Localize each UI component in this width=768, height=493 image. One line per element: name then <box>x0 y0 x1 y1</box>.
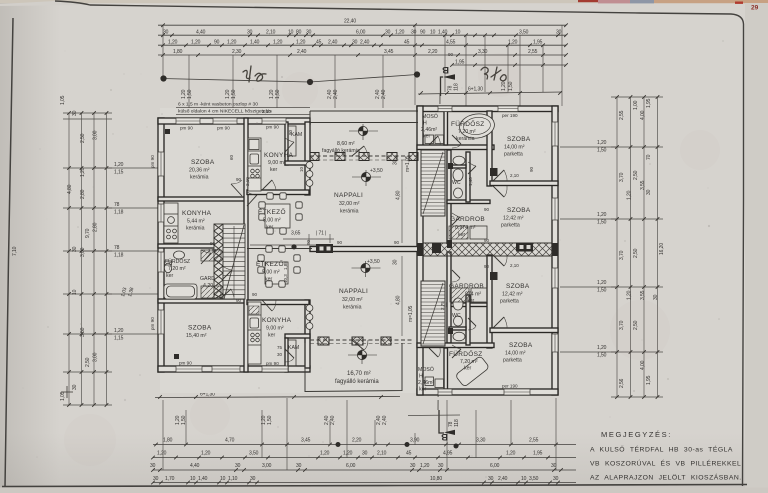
svg-text:14,00 m²: 14,00 m² <box>505 351 526 357</box>
svg-text:4,40: 4,40 <box>190 463 200 469</box>
svg-text:1,20: 1,20 <box>597 212 607 218</box>
svg-text:3,00: 3,00 <box>93 130 99 140</box>
svg-text:3,00: 3,00 <box>80 247 86 257</box>
svg-text:20,36 m²: 20,36 m² <box>189 168 210 174</box>
svg-text:m=1,05: m=1,05 <box>405 155 411 172</box>
svg-text:ker: ker <box>464 366 471 372</box>
svg-text:2,20: 2,20 <box>352 438 362 444</box>
svg-text:32,00 m²: 32,00 m² <box>342 297 363 303</box>
svg-text:1,20: 1,20 <box>597 140 607 146</box>
svg-text:9,00 m²: 9,00 m² <box>266 326 284 332</box>
svg-text:H: H <box>423 121 427 127</box>
svg-text:1,18: 1,18 <box>114 253 124 259</box>
svg-text:parketta: parketta <box>503 358 522 364</box>
svg-text:15,40 m²: 15,40 m² <box>186 333 207 339</box>
svg-text:2,55: 2,55 <box>619 110 625 120</box>
svg-text:ker: ker <box>458 232 465 238</box>
svg-text:1,20: 1,20 <box>273 39 283 45</box>
svg-text:2,20: 2,20 <box>428 49 438 55</box>
svg-text:2,55: 2,55 <box>528 49 538 55</box>
svg-text:30: 30 <box>438 463 444 469</box>
svg-text:10: 10 <box>430 29 436 35</box>
svg-text:10: 10 <box>299 166 304 172</box>
svg-text:80: 80 <box>296 29 302 35</box>
svg-text:10,80: 10,80 <box>430 476 442 482</box>
svg-text:30: 30 <box>72 384 78 390</box>
svg-text:60: 60 <box>229 154 234 160</box>
svg-text:3,65: 3,65 <box>291 231 301 237</box>
svg-text:1,20: 1,20 <box>506 450 516 456</box>
svg-text:3,50: 3,50 <box>80 327 86 337</box>
svg-text:16,20: 16,20 <box>659 243 665 255</box>
svg-text:8,60 m²: 8,60 m² <box>337 141 355 147</box>
svg-text:VB KOSZORÚVAL ÉS VB PILLÉREKKE: VB KOSZORÚVAL ÉS VB PILLÉREKKEL <box>590 459 741 468</box>
svg-text:1,95: 1,95 <box>646 98 652 108</box>
svg-text:30: 30 <box>653 294 659 300</box>
svg-text:2,10: 2,10 <box>377 450 387 456</box>
svg-text:30: 30 <box>306 29 312 35</box>
svg-text:KONYHA: KONYHA <box>264 152 294 159</box>
svg-text:2,50: 2,50 <box>633 170 639 180</box>
svg-text:6,00: 6,00 <box>490 463 500 469</box>
svg-text:4,95: 4,95 <box>443 450 453 456</box>
svg-text:7,20 m²: 7,20 m² <box>168 266 186 272</box>
svg-text:SZOBA: SZOBA <box>507 136 531 143</box>
svg-text:2,75: 2,75 <box>440 301 445 310</box>
svg-text:4,70: 4,70 <box>225 438 235 444</box>
svg-text:30: 30 <box>488 476 494 482</box>
svg-text:1,50: 1,50 <box>597 288 607 294</box>
svg-text:22,40: 22,40 <box>344 19 356 25</box>
svg-text:30: 30 <box>385 29 391 35</box>
svg-text:90: 90 <box>236 177 242 182</box>
svg-text:30: 30 <box>72 246 78 252</box>
svg-text:32,00 m²: 32,00 m² <box>339 201 360 207</box>
svg-text:29: 29 <box>751 5 759 12</box>
svg-text:ker: ker <box>423 134 430 140</box>
svg-text:pm 90: pm 90 <box>180 126 193 131</box>
svg-text:90: 90 <box>529 166 534 172</box>
svg-text:ker: ker <box>270 167 277 173</box>
svg-text:1,15: 1,15 <box>114 336 124 342</box>
svg-text:90: 90 <box>210 241 216 246</box>
svg-text:45: 45 <box>406 450 412 456</box>
svg-text:+3,50: +3,50 <box>370 168 383 174</box>
svg-text:1,20: 1,20 <box>508 39 518 45</box>
svg-text:2,40: 2,40 <box>328 39 338 45</box>
svg-text:SZOBA: SZOBA <box>506 283 530 290</box>
svg-text:3,45: 3,45 <box>384 49 394 55</box>
svg-text:30: 30 <box>646 189 652 195</box>
svg-text:2,40: 2,40 <box>333 89 339 99</box>
svg-text:1,50: 1,50 <box>597 148 607 154</box>
svg-text:30: 30 <box>247 29 253 35</box>
svg-text:parketta: parketta <box>501 223 520 229</box>
svg-text:pm 90: pm 90 <box>150 317 155 330</box>
svg-text:3,70: 3,70 <box>619 172 625 182</box>
svg-text:1,40: 1,40 <box>468 177 473 186</box>
svg-text:1,90: 1,90 <box>208 248 217 253</box>
svg-text:KONYHA: KONYHA <box>262 317 292 324</box>
svg-text:30: 30 <box>72 110 78 116</box>
svg-text:külső oldalon 4 cm NIKECELL hő: külső oldalon 4 cm NIKECELL hőszigetelés <box>178 109 272 115</box>
svg-text:SZOBA: SZOBA <box>509 342 533 349</box>
svg-text:FÜRDŐSZ: FÜRDŐSZ <box>165 258 190 265</box>
svg-text:3,00: 3,00 <box>93 352 99 362</box>
svg-text:1,20: 1,20 <box>191 39 201 45</box>
svg-text:1,20: 1,20 <box>168 39 178 45</box>
svg-text:ker: ker <box>266 225 273 231</box>
svg-text:ÉTKEZŐ: ÉTKEZŐ <box>256 259 284 268</box>
svg-text:FÜRDŐSZ: FÜRDŐSZ <box>451 119 485 128</box>
svg-text:KONYHA: KONYHA <box>182 210 212 217</box>
svg-text:SZOBA: SZOBA <box>507 207 531 214</box>
svg-text:1,10: 1,10 <box>228 476 238 482</box>
svg-text:10: 10 <box>455 29 461 35</box>
svg-text:1,95: 1,95 <box>455 60 465 66</box>
svg-text:6+1,30: 6+1,30 <box>468 87 483 93</box>
svg-text:1,50: 1,50 <box>187 89 193 99</box>
svg-text:1,20: 1,20 <box>296 39 306 45</box>
svg-text:kerámia: kerámia <box>340 209 359 215</box>
svg-text:45: 45 <box>404 39 410 45</box>
svg-text:kerámia: kerámia <box>456 136 475 142</box>
svg-text:10: 10 <box>190 476 196 482</box>
svg-text:6 x 1,5 m -ként vasbeton osz: 6 x 1,5 m -ként vasbeton oszlop # 30 <box>178 102 258 108</box>
svg-text:1,40: 1,40 <box>438 29 448 35</box>
svg-text:3,00: 3,00 <box>262 463 272 469</box>
svg-text:MOSÓ: MOSÓ <box>418 366 434 373</box>
svg-text:90: 90 <box>484 207 490 212</box>
svg-text:4,55: 4,55 <box>446 39 456 45</box>
svg-text:fagyálló kerámia: fagyálló kerámia <box>335 379 379 385</box>
svg-text:1,80: 1,80 <box>173 49 183 55</box>
svg-text:30: 30 <box>411 29 417 35</box>
svg-text:30: 30 <box>393 159 399 165</box>
svg-text:118: 118 <box>454 419 460 427</box>
svg-text:2,30: 2,30 <box>232 49 242 55</box>
svg-text:2,80: 2,80 <box>93 222 99 232</box>
svg-text:4,40: 4,40 <box>196 29 206 35</box>
svg-text:90: 90 <box>420 29 426 35</box>
svg-text:3,55: 3,55 <box>640 180 646 190</box>
svg-text:2,56: 2,56 <box>619 378 625 388</box>
svg-text:5,00 m²: 5,00 m² <box>263 218 281 224</box>
svg-text:pm 90: pm 90 <box>217 126 230 131</box>
svg-text:pm 90: pm 90 <box>179 361 192 366</box>
svg-text:ÉTKEZŐ: ÉTKEZŐ <box>258 207 286 216</box>
svg-text:1,95: 1,95 <box>646 375 652 385</box>
svg-text:1,20: 1,20 <box>627 190 633 200</box>
svg-text:NAPPALI: NAPPALI <box>339 288 368 295</box>
svg-text:3,70: 3,70 <box>619 250 625 260</box>
svg-text:70: 70 <box>646 154 652 160</box>
svg-text:FÜRDŐSZ: FÜRDŐSZ <box>449 349 483 358</box>
svg-text:SZOBA: SZOBA <box>188 325 212 332</box>
svg-text:WC: WC <box>452 313 461 319</box>
svg-text:| 71 |: | 71 | <box>316 231 326 237</box>
svg-text:1,70: 1,70 <box>165 476 175 482</box>
svg-text:ker: ker <box>166 273 173 279</box>
svg-text:2,10: 2,10 <box>266 29 276 35</box>
svg-text:2,80: 2,80 <box>80 189 86 199</box>
svg-text:2,10: 2,10 <box>245 177 250 186</box>
svg-text:30: 30 <box>296 463 302 469</box>
svg-text:m=1,05: m=1,05 <box>408 305 414 322</box>
svg-text:1,50: 1,50 <box>597 353 607 359</box>
svg-text:2,50: 2,50 <box>633 248 639 258</box>
svg-text:78: 78 <box>114 245 120 251</box>
svg-text:3,50: 3,50 <box>519 29 529 35</box>
svg-text:0,974 m²: 0,974 m² <box>455 225 476 231</box>
svg-text:90: 90 <box>448 52 454 57</box>
svg-text:AZ ALAPRAJZON JELÖLT KIOSZÁSBA: AZ ALAPRAJZON JELÖLT KIOSZÁSBAN. <box>590 473 742 482</box>
svg-text:3,50: 3,50 <box>529 476 539 482</box>
svg-text:1,50: 1,50 <box>275 89 281 99</box>
svg-text:9,00 m²: 9,00 m² <box>268 160 286 166</box>
svg-text:1,20: 1,20 <box>157 450 167 456</box>
svg-text:75: 75 <box>277 345 283 350</box>
svg-text:GARDROB: GARDROB <box>450 216 485 223</box>
svg-text:1,50: 1,50 <box>231 89 237 99</box>
svg-text:4,00: 4,00 <box>640 110 646 120</box>
svg-text:30: 30 <box>410 463 416 469</box>
svg-text:10: 10 <box>288 29 294 35</box>
svg-text:3,50: 3,50 <box>249 450 259 456</box>
svg-text:kerámia: kerámia <box>190 175 209 181</box>
svg-text:1,20: 1,20 <box>227 39 237 45</box>
svg-text:2,40: 2,40 <box>381 89 387 99</box>
svg-text:kerámia: kerámia <box>186 226 205 232</box>
svg-text:7,10: 7,10 <box>12 246 18 256</box>
svg-text:1,20: 1,20 <box>114 162 124 168</box>
svg-text:30: 30 <box>153 476 159 482</box>
svg-text:90: 90 <box>252 292 258 297</box>
svg-text:1,40: 1,40 <box>198 476 208 482</box>
svg-text:per 190: per 190 <box>502 384 518 389</box>
svg-text:KAM: KAM <box>288 345 299 351</box>
svg-text:9,70: 9,70 <box>85 228 91 238</box>
svg-text:90: 90 <box>484 238 490 243</box>
svg-text:4,00: 4,00 <box>640 360 646 370</box>
svg-text:MEGJEGYZÉS:: MEGJEGYZÉS: <box>601 430 672 439</box>
svg-text:NAPPALI: NAPPALI <box>334 192 363 199</box>
svg-text:3,30: 3,30 <box>478 49 488 55</box>
svg-text:30: 30 <box>362 450 368 456</box>
svg-text:fagyálló kerámia: fagyálló kerámia <box>322 148 360 154</box>
svg-text:30: 30 <box>163 29 169 35</box>
svg-text:2,10: 2,10 <box>510 173 519 178</box>
svg-text:10: 10 <box>521 476 527 482</box>
svg-text:4,20: 4,20 <box>203 283 213 289</box>
svg-text:1,18: 1,18 <box>114 210 124 216</box>
svg-text:1,20: 1,20 <box>597 280 607 286</box>
svg-text:kerámia: kerámia <box>343 305 362 311</box>
svg-text:pm 90: pm 90 <box>150 155 155 168</box>
svg-text:1,50: 1,50 <box>597 220 607 226</box>
svg-text:12,42 m²: 12,42 m² <box>503 216 524 222</box>
svg-text:1,95: 1,95 <box>533 39 543 45</box>
svg-text:1,20: 1,20 <box>80 167 86 177</box>
svg-text:GARD: GARD <box>200 276 215 282</box>
svg-text:1,50: 1,50 <box>267 415 273 425</box>
svg-text:pm 90: pm 90 <box>266 125 279 130</box>
svg-text:90: 90 <box>484 264 490 269</box>
svg-text:WC: WC <box>452 180 461 186</box>
svg-text:2,55: 2,55 <box>529 438 539 444</box>
svg-text:ker: ker <box>467 298 474 304</box>
svg-text:per 190: per 190 <box>502 113 518 118</box>
svg-text:14,00 m²: 14,00 m² <box>504 145 525 151</box>
svg-text:2,40: 2,40 <box>360 39 370 45</box>
svg-text:1,20: 1,20 <box>201 450 211 456</box>
svg-text:1,20: 1,20 <box>343 450 353 456</box>
svg-text:ker: ker <box>265 277 272 283</box>
svg-text:2,40: 2,40 <box>297 49 307 55</box>
svg-text:1,05: 1,05 <box>60 95 66 105</box>
svg-text:3,30: 3,30 <box>476 438 486 444</box>
svg-text:30: 30 <box>393 259 399 265</box>
svg-text:90: 90 <box>394 240 400 245</box>
svg-text:ker: ker <box>268 333 275 339</box>
svg-text:3,45: 3,45 <box>301 438 311 444</box>
svg-text:30: 30 <box>556 29 562 35</box>
svg-text:30: 30 <box>553 476 559 482</box>
svg-text:90: 90 <box>337 240 343 245</box>
svg-text:7,20 m²: 7,20 m² <box>458 129 476 135</box>
svg-text:90: 90 <box>214 39 220 45</box>
svg-text:2,40: 2,40 <box>498 476 508 482</box>
svg-text:6,00: 6,00 <box>356 29 366 35</box>
svg-text:45: 45 <box>316 39 322 45</box>
svg-text:974 m²: 974 m² <box>465 292 481 298</box>
svg-text:+3,50: +3,50 <box>367 259 380 265</box>
svg-text:A KULSŐ TÉRDFAL HB 30-as TÉGLA: A KULSŐ TÉRDFAL HB 30-as TÉGLA <box>590 445 733 454</box>
svg-text:2,10: 2,10 <box>262 109 271 114</box>
svg-text:118: 118 <box>454 83 460 91</box>
svg-text:30: 30 <box>277 352 283 357</box>
svg-text:12,42 m²: 12,42 m² <box>502 292 523 298</box>
svg-text:4,80: 4,80 <box>67 184 73 194</box>
svg-text:SZOBA: SZOBA <box>191 159 215 166</box>
svg-text:1,20: 1,20 <box>395 29 405 35</box>
svg-text:parketta: parketta <box>504 152 523 158</box>
svg-text:H: H <box>419 374 423 380</box>
svg-text:1,20: 1,20 <box>597 345 607 351</box>
svg-text:1,20: 1,20 <box>320 450 330 456</box>
svg-text:6,00: 6,00 <box>346 463 356 469</box>
svg-text:7,20 m²: 7,20 m² <box>460 359 478 365</box>
svg-text:4,80: 4,80 <box>396 190 402 200</box>
svg-text:B: B <box>442 64 449 75</box>
svg-text:5,44 m²: 5,44 m² <box>187 219 205 225</box>
svg-text:2,40: 2,40 <box>330 415 336 425</box>
svg-text:1,00: 1,00 <box>633 100 639 110</box>
svg-text:2,46m²: 2,46m² <box>421 127 437 133</box>
svg-text:1,05: 1,05 <box>60 391 66 401</box>
svg-text:2,50: 2,50 <box>85 357 91 367</box>
svg-text:1,20: 1,20 <box>627 290 633 300</box>
svg-text:90: 90 <box>288 129 293 135</box>
svg-text:pm 90: pm 90 <box>266 361 279 366</box>
svg-text:3,55: 3,55 <box>640 290 646 300</box>
svg-text:1,40: 1,40 <box>250 39 260 45</box>
svg-text:ker: ker <box>419 387 426 393</box>
svg-text:1,95: 1,95 <box>533 450 543 456</box>
svg-text:78: 78 <box>114 202 120 208</box>
svg-text:MOSÓ: MOSÓ <box>422 113 438 120</box>
svg-text:1,15: 1,15 <box>114 170 124 176</box>
svg-text:30: 30 <box>352 39 358 45</box>
svg-text:10: 10 <box>72 289 78 295</box>
svg-text:parketta: parketta <box>500 299 519 305</box>
svg-text:90: 90 <box>306 239 311 245</box>
svg-text:1,88: 1,88 <box>283 261 288 270</box>
svg-text:4,80: 4,80 <box>396 295 402 305</box>
svg-text:2,10: 2,10 <box>510 263 519 268</box>
svg-text:2,50: 2,50 <box>80 133 86 143</box>
svg-text:1,20: 1,20 <box>420 463 430 469</box>
svg-text:90: 90 <box>236 298 242 303</box>
svg-text:1,80: 1,80 <box>163 438 173 444</box>
svg-text:16,70 m²: 16,70 m² <box>347 371 371 377</box>
svg-text:5,00 m²: 5,00 m² <box>262 270 280 276</box>
svg-text:GARDROB: GARDROB <box>449 283 484 290</box>
svg-text:2,40: 2,40 <box>382 415 388 425</box>
svg-text:1,20: 1,20 <box>114 328 124 334</box>
